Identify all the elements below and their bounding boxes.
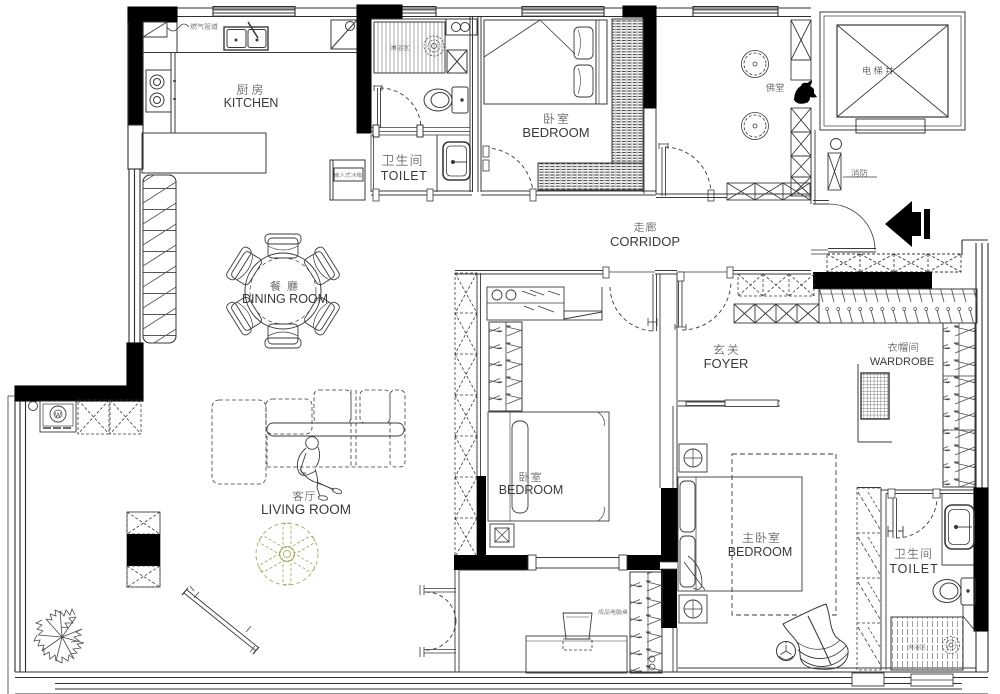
- svg-text:WARDROBE: WARDROBE: [870, 356, 934, 368]
- svg-text:FOYER: FOYER: [704, 356, 749, 371]
- svg-text:KITCHEN: KITCHEN: [224, 96, 279, 110]
- svg-text:W: W: [55, 412, 62, 419]
- svg-text:BEDROOM: BEDROOM: [728, 545, 793, 559]
- svg-text:TOILET: TOILET: [889, 562, 939, 576]
- svg-text:BEDROOM: BEDROOM: [522, 125, 589, 140]
- svg-text:LIVING ROOM: LIVING ROOM: [261, 502, 351, 517]
- svg-text:BEDROOM: BEDROOM: [499, 483, 564, 497]
- svg-text:DINING ROOM: DINING ROOM: [242, 292, 328, 306]
- svg-text:CORRIDOP: CORRIDOP: [610, 234, 680, 249]
- svg-text:TOILET: TOILET: [381, 169, 428, 183]
